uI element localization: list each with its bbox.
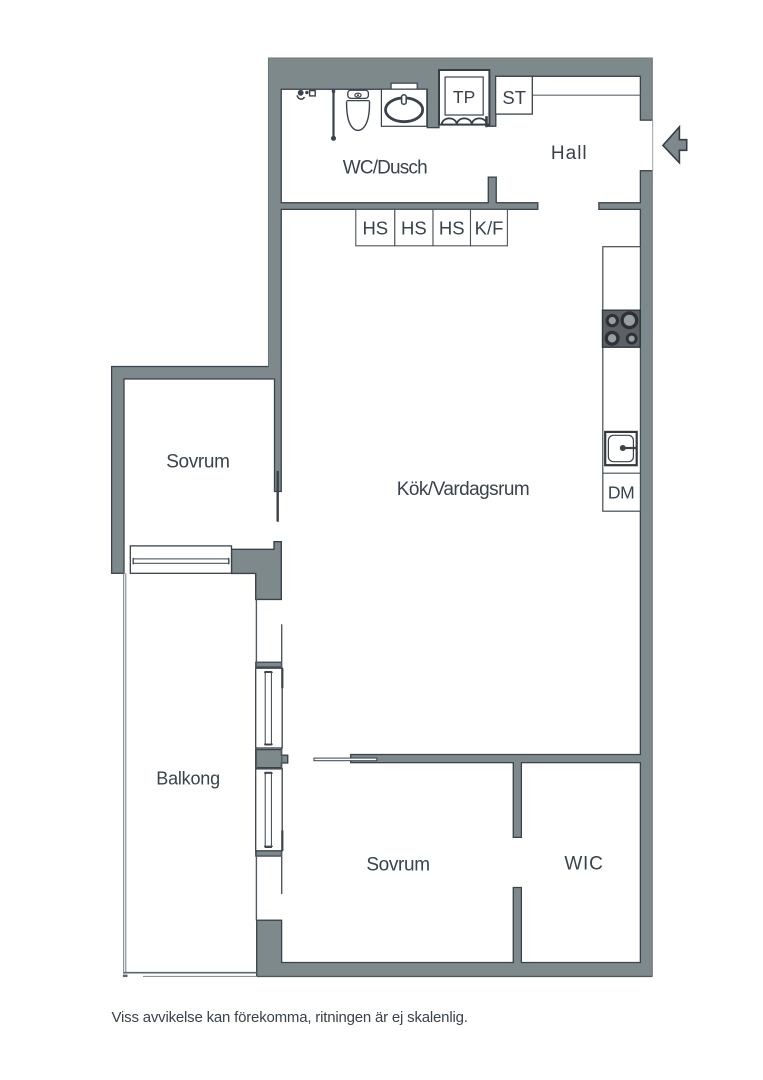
svg-text:K/F: K/F xyxy=(475,217,504,238)
svg-text:HS: HS xyxy=(401,217,427,238)
svg-text:Sovrum: Sovrum xyxy=(366,855,429,876)
svg-text:HS: HS xyxy=(362,217,388,238)
svg-text:HS: HS xyxy=(439,217,465,238)
svg-text:DM: DM xyxy=(608,482,634,502)
svg-text:Balkong: Balkong xyxy=(156,768,220,788)
svg-text:TP: TP xyxy=(453,87,475,107)
svg-text:ST: ST xyxy=(502,87,526,108)
svg-text:Sovrum: Sovrum xyxy=(166,452,229,473)
svg-text:Hall: Hall xyxy=(551,143,588,164)
svg-text:WC/Dusch: WC/Dusch xyxy=(343,158,427,179)
svg-text:Kök/Vardagsrum: Kök/Vardagsrum xyxy=(397,479,529,500)
svg-text:Viss avvikelse kan förekomma,: Viss avvikelse kan förekomma, ritningen … xyxy=(112,1009,468,1026)
svg-text:WIC: WIC xyxy=(564,853,603,874)
